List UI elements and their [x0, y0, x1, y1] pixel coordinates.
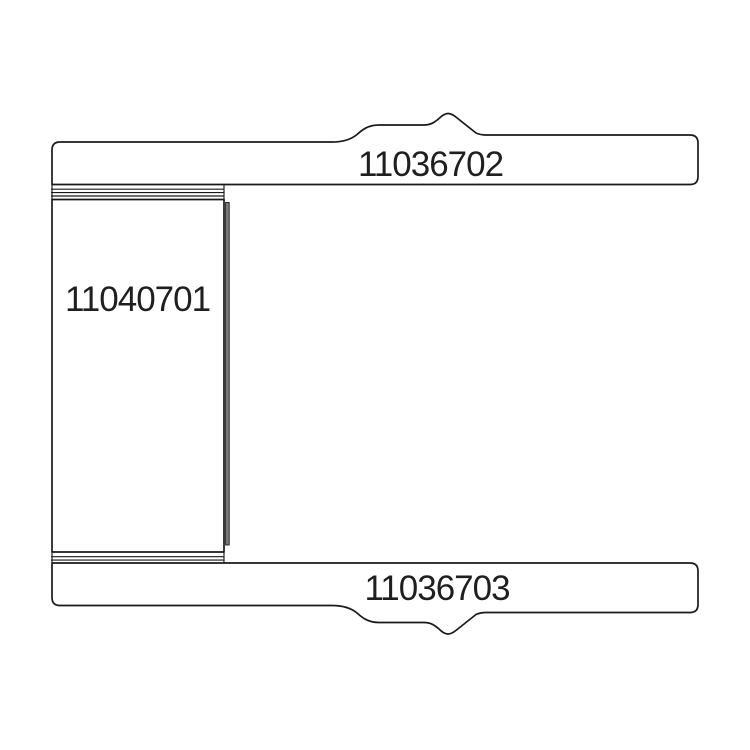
cylinder-seam-line [226, 203, 230, 546]
thread-band-bottom [51, 552, 224, 563]
part-label-upper-plate: 11036702 [358, 145, 503, 184]
part-diagram-svg: 11036702 11040701 11036703 [0, 0, 750, 750]
part-label-cylinder: 11040701 [65, 280, 210, 319]
cylinder-outline [52, 200, 224, 553]
thread-band-top [51, 185, 224, 200]
part-label-lower-plate: 11036703 [364, 569, 509, 608]
drawing-canvas: 11036702 11040701 11036703 [0, 0, 750, 750]
